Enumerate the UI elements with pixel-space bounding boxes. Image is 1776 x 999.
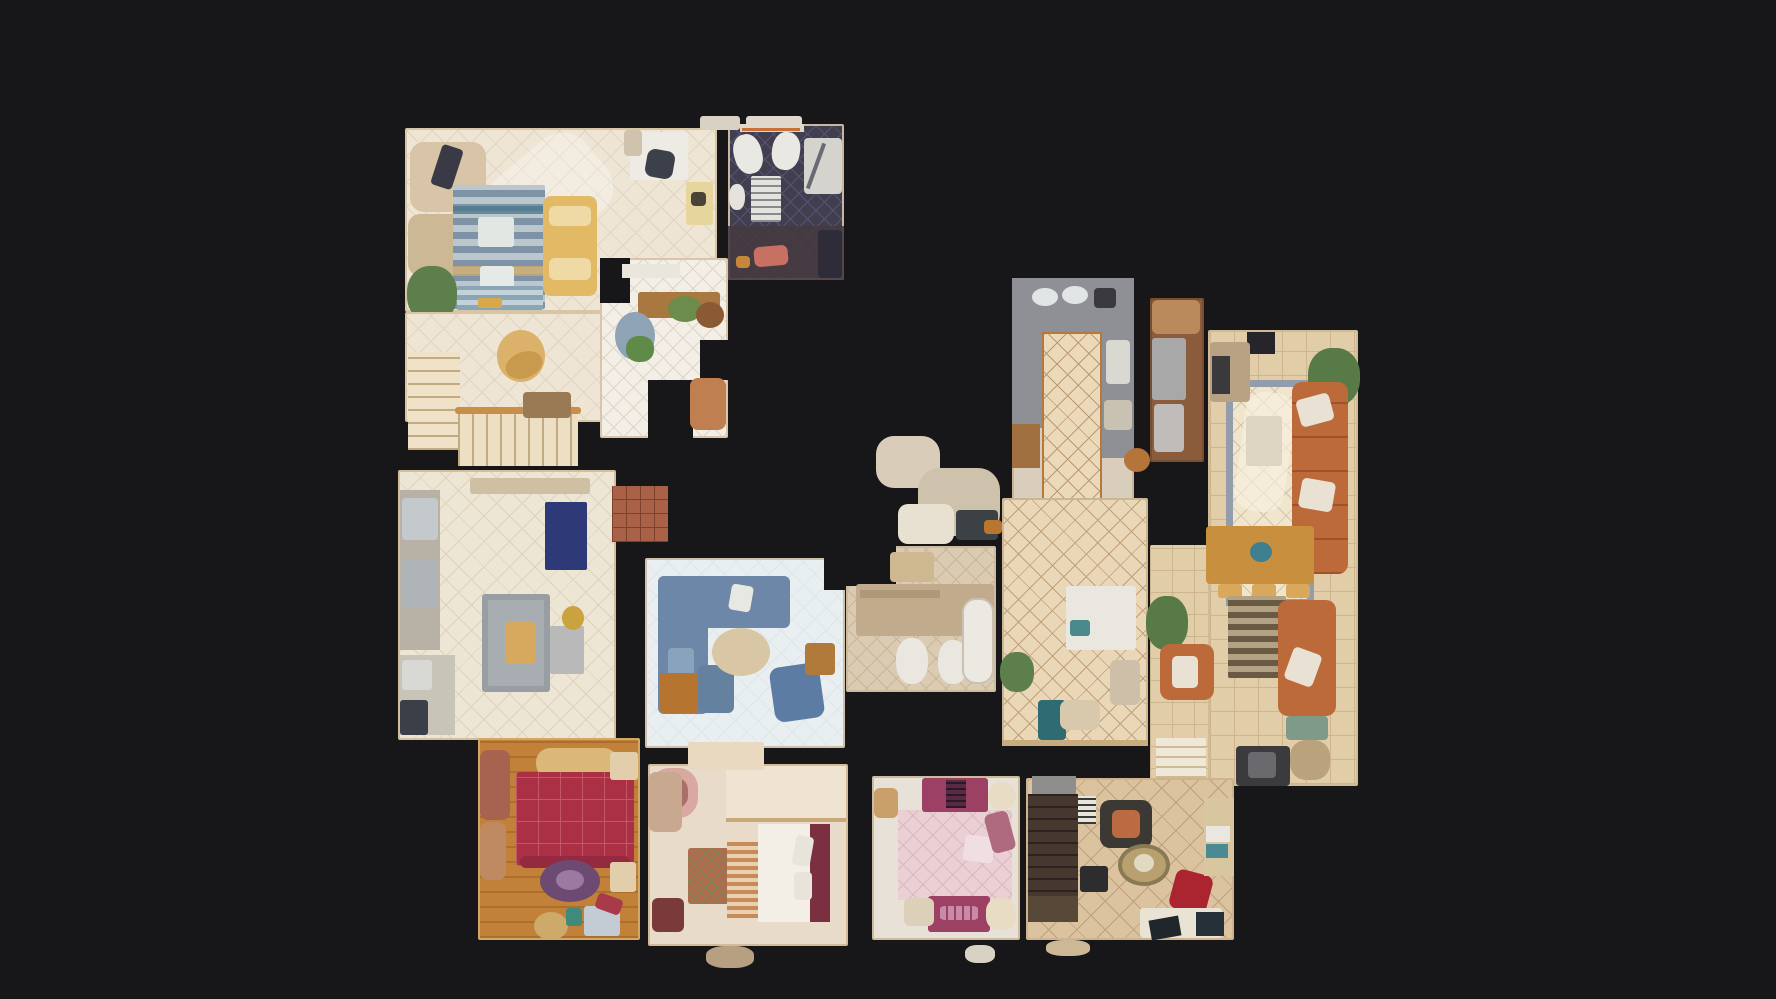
furniture-table-bowl-blue	[1250, 542, 1272, 562]
furniture-bath-mat-striped	[751, 176, 781, 222]
furniture-coffee-table-family	[1246, 416, 1282, 466]
furniture-stove-steel	[402, 560, 438, 608]
furniture-round-planter	[696, 302, 724, 328]
furniture-rug-woven-center	[1134, 854, 1154, 872]
furniture-closet-nook	[726, 766, 846, 820]
furniture-clutter-family-se	[1290, 740, 1330, 780]
furniture-monitor-dark	[1196, 912, 1224, 936]
furniture-cabinet-teal-bit	[1206, 844, 1228, 858]
furniture-nightstand-se	[986, 898, 1016, 930]
scan-fragment-bath-top-edge	[746, 116, 802, 126]
furniture-scan-hole-blue-ne	[824, 558, 845, 590]
furniture-dark-side-table	[1080, 866, 1108, 892]
furniture-console-wood	[523, 392, 571, 418]
furniture-counter-items-white	[1106, 340, 1130, 384]
furniture-sofa1-pillow-b	[1298, 477, 1337, 512]
furniture-stove-dark	[1094, 288, 1116, 308]
furniture-stairs-landing-flight	[458, 414, 578, 466]
furniture-sink-basin	[729, 184, 745, 210]
furniture-kitchen-sink-b	[1062, 286, 1088, 304]
furniture-hall-teal-accent	[1070, 620, 1090, 636]
furniture-chair-terracotta	[690, 378, 726, 430]
furniture-gray-box-top	[1032, 776, 1076, 796]
furniture-footboard-rings	[938, 906, 980, 920]
furniture-rug-round-jute	[712, 628, 770, 676]
tour-viewer-canvas[interactable]	[0, 0, 1776, 999]
furniture-rug-gray	[550, 626, 584, 674]
furniture-stair-landing-dark	[1028, 896, 1078, 922]
furniture-toilet-2	[896, 638, 928, 684]
furniture-doorway-shadow-top	[1247, 332, 1275, 354]
furniture-nightstand-ne	[988, 782, 1016, 810]
furniture-hall-plant	[1000, 652, 1034, 692]
furniture-lamp-gold	[562, 606, 584, 630]
furniture-fireplace-top	[1248, 752, 1276, 778]
furniture-scan-hole-nook-3	[700, 340, 728, 380]
furniture-closet-wall-line	[726, 818, 846, 822]
furniture-nightstand-1	[610, 752, 638, 780]
furniture-sofa-pillow-blue	[668, 648, 694, 676]
furniture-stairs-upper-flight	[408, 352, 460, 450]
furniture-tapestry-rug	[688, 848, 732, 904]
furniture-staircase-dark	[1028, 794, 1078, 904]
furniture-rug-stripe-teal	[453, 206, 545, 214]
furniture-striped-threshold	[1078, 796, 1096, 824]
furniture-side-counter-steel	[1152, 338, 1186, 400]
furniture-desk-chair	[644, 148, 676, 180]
room-connector-hall[interactable]	[688, 742, 764, 770]
furniture-bathtub	[962, 598, 994, 684]
furniture-side-counter-mirror	[1154, 404, 1184, 452]
furniture-art-accent-yellow	[478, 298, 502, 308]
furniture-tv-dark	[1212, 356, 1230, 394]
furniture-side-table-wood	[805, 643, 835, 675]
scan-fragment-mid-debris-orange	[984, 520, 1002, 534]
furniture-plant-on-table	[626, 336, 654, 362]
furniture-sun-hat	[534, 912, 568, 940]
furniture-corridor-tile	[1042, 332, 1102, 502]
furniture-sofa-cushion-2	[549, 258, 591, 280]
furniture-teal-bag	[566, 908, 582, 926]
furniture-armchair-cushion-orange	[1112, 810, 1140, 838]
scan-fragment-below-study-bits	[1046, 940, 1090, 956]
furniture-cutting-board	[505, 622, 535, 664]
furniture-scan-hole-nook-2	[648, 380, 693, 438]
furniture-towel-rail-orange	[742, 128, 800, 131]
furniture-bed-red-quilt	[516, 772, 634, 866]
furniture-wardrobe-clutter	[648, 772, 682, 832]
scan-fragment-terracotta-tile-patch	[612, 486, 668, 542]
furniture-sofa-pillow-white	[728, 583, 754, 612]
furniture-side-table-item	[691, 192, 706, 206]
furniture-side-table-green	[1286, 716, 1328, 740]
scan-fragment-below-pink-bedroom-bits	[965, 945, 995, 963]
furniture-rug-navy	[545, 502, 587, 570]
furniture-appliance-white	[402, 660, 432, 690]
furniture-counter-white-edge	[622, 264, 680, 278]
furniture-hall-bottom-wall	[1002, 740, 1148, 746]
furniture-side-counter-clutter	[1152, 300, 1200, 334]
floor-plan[interactable]	[0, 0, 1776, 999]
furniture-hall-clutter-2	[1110, 660, 1140, 705]
furniture-appliance-dark	[400, 700, 428, 735]
furniture-orange-item	[736, 256, 750, 268]
scan-fragment-white-tile-wedge	[898, 504, 954, 544]
furniture-granite-counter-left	[1012, 332, 1042, 428]
furniture-plant-terrace	[1146, 596, 1188, 650]
furniture-pink-towel	[753, 245, 789, 268]
furniture-dark-cabinet	[818, 230, 842, 278]
furniture-stool-wood	[890, 552, 934, 582]
furniture-scan-hole-bath2	[846, 546, 896, 586]
furniture-sink-steel	[402, 498, 438, 540]
furniture-bed-foot-runner	[727, 842, 759, 918]
furniture-wall-clutter-red-2	[480, 822, 506, 880]
furniture-rug-ornate-center	[556, 870, 584, 890]
furniture-maroon-chest	[652, 898, 684, 932]
furniture-counter-items-beige	[1104, 400, 1132, 430]
furniture-hall-cabinet-white	[1066, 586, 1136, 650]
furniture-clutter-pink-nw	[874, 788, 898, 818]
furniture-kitchen-shelf-top	[470, 478, 590, 494]
furniture-table-sw	[904, 898, 934, 926]
furniture-headboard-slats	[946, 780, 966, 808]
furniture-desk-clutter	[624, 130, 642, 156]
furniture-copper-pot	[1124, 448, 1150, 472]
furniture-kitchen-sink-a	[1032, 288, 1058, 306]
furniture-cabinet-white-bit	[1206, 826, 1230, 842]
furniture-pillow-white-b	[794, 872, 812, 900]
furniture-vanity-mirror-line	[860, 590, 940, 598]
furniture-wall-clutter-red-1	[480, 750, 510, 820]
furniture-dining-chair-3	[1286, 584, 1310, 598]
furniture-coffee-table-1	[478, 217, 514, 247]
furniture-sofa-cushion-1	[549, 206, 591, 226]
furniture-hall-clutter-1	[1060, 700, 1100, 730]
scan-fragment-top-edge-bits	[700, 116, 740, 130]
furniture-cabinet-wood-left	[1012, 424, 1040, 468]
furniture-cabinet-wood	[660, 673, 698, 713]
scan-fragment-below-white-bedroom-bits	[706, 946, 754, 968]
furniture-nightstand-2	[610, 862, 636, 892]
furniture-armchair-cushion	[1172, 656, 1198, 688]
